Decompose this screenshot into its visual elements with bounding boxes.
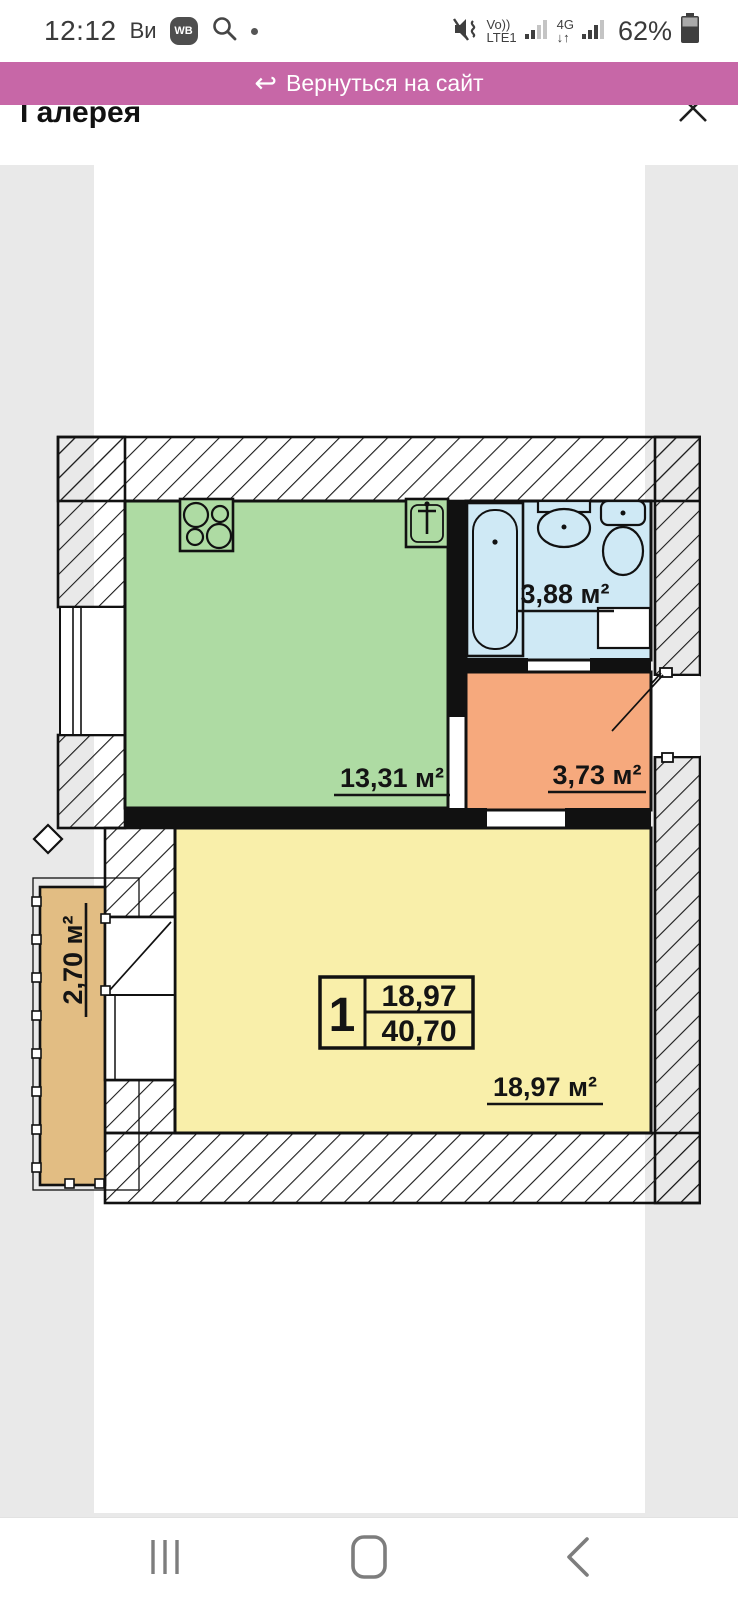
recents-icon	[145, 1537, 185, 1582]
kitchen-window-icon	[60, 607, 125, 735]
kitchen-room	[125, 501, 448, 808]
status-bar-left: 12:12 Ви WB	[0, 15, 258, 47]
balcony-area-label: 2,70 м²	[58, 915, 88, 1004]
return-arrow-icon: ↩	[254, 70, 277, 97]
balcony-door-icon	[101, 914, 175, 1080]
phone-screen: { "status_bar": { "time": "12:12", "noti…	[0, 0, 738, 1600]
gallery-title: Галерея	[20, 105, 141, 130]
wildberries-icon: WB	[170, 17, 198, 45]
bathroom-area-label: 3,88 м²	[520, 579, 609, 609]
return-banner-label: Вернуться на сайт	[286, 70, 484, 97]
back-icon	[561, 1535, 595, 1584]
floor-plan-image[interactable]: 13,31 м² 3,88 м² 3,73 м² 18,97 м² 2,70 м…	[29, 435, 701, 1207]
stamp-rooms-count: 1	[329, 989, 356, 1042]
recents-button[interactable]	[120, 1518, 210, 1601]
kitchen-sink-icon	[406, 499, 448, 547]
stamp-living-area: 18,97	[381, 980, 456, 1013]
home-button[interactable]	[324, 1518, 414, 1601]
stamp-total-area: 40,70	[381, 1015, 456, 1048]
battery-percent: 62%	[618, 16, 672, 47]
washing-machine-icon	[598, 608, 650, 648]
status-bar: 12:12 Ви WB Vo)) LTE1	[0, 0, 738, 62]
android-nav-bar	[0, 1517, 738, 1601]
status-bar-right: Vo)) LTE1 4G ↓↑ 62%	[451, 13, 738, 49]
battery-icon	[680, 13, 700, 49]
toilet-icon	[601, 501, 645, 575]
stove-icon	[180, 499, 233, 551]
hallway-area-label: 3,73 м²	[552, 760, 641, 790]
network-type-indicator: 4G ↓↑	[557, 18, 574, 44]
living-room-area-label: 18,97 м²	[493, 1072, 597, 1102]
signal-bars-icon	[525, 18, 549, 45]
search-icon	[211, 15, 238, 47]
notification-dot-icon	[251, 28, 258, 35]
kitchen-area-label: 13,31 м²	[340, 763, 444, 793]
washbasin-icon	[538, 501, 590, 547]
clock: 12:12	[44, 15, 117, 47]
gallery-header: Галерея	[0, 105, 738, 165]
mute-vibrate-icon	[451, 15, 479, 48]
signal-bars-icon	[582, 18, 606, 45]
back-button[interactable]	[533, 1518, 623, 1601]
close-icon[interactable]	[674, 105, 712, 132]
return-to-site-banner[interactable]: ↩ Вернуться на сайт	[0, 62, 738, 105]
volte-indicator: Vo)) LTE1	[487, 18, 517, 44]
bathtub-icon	[467, 503, 523, 656]
notification-text: Ви	[130, 18, 157, 44]
home-icon	[349, 1534, 389, 1585]
